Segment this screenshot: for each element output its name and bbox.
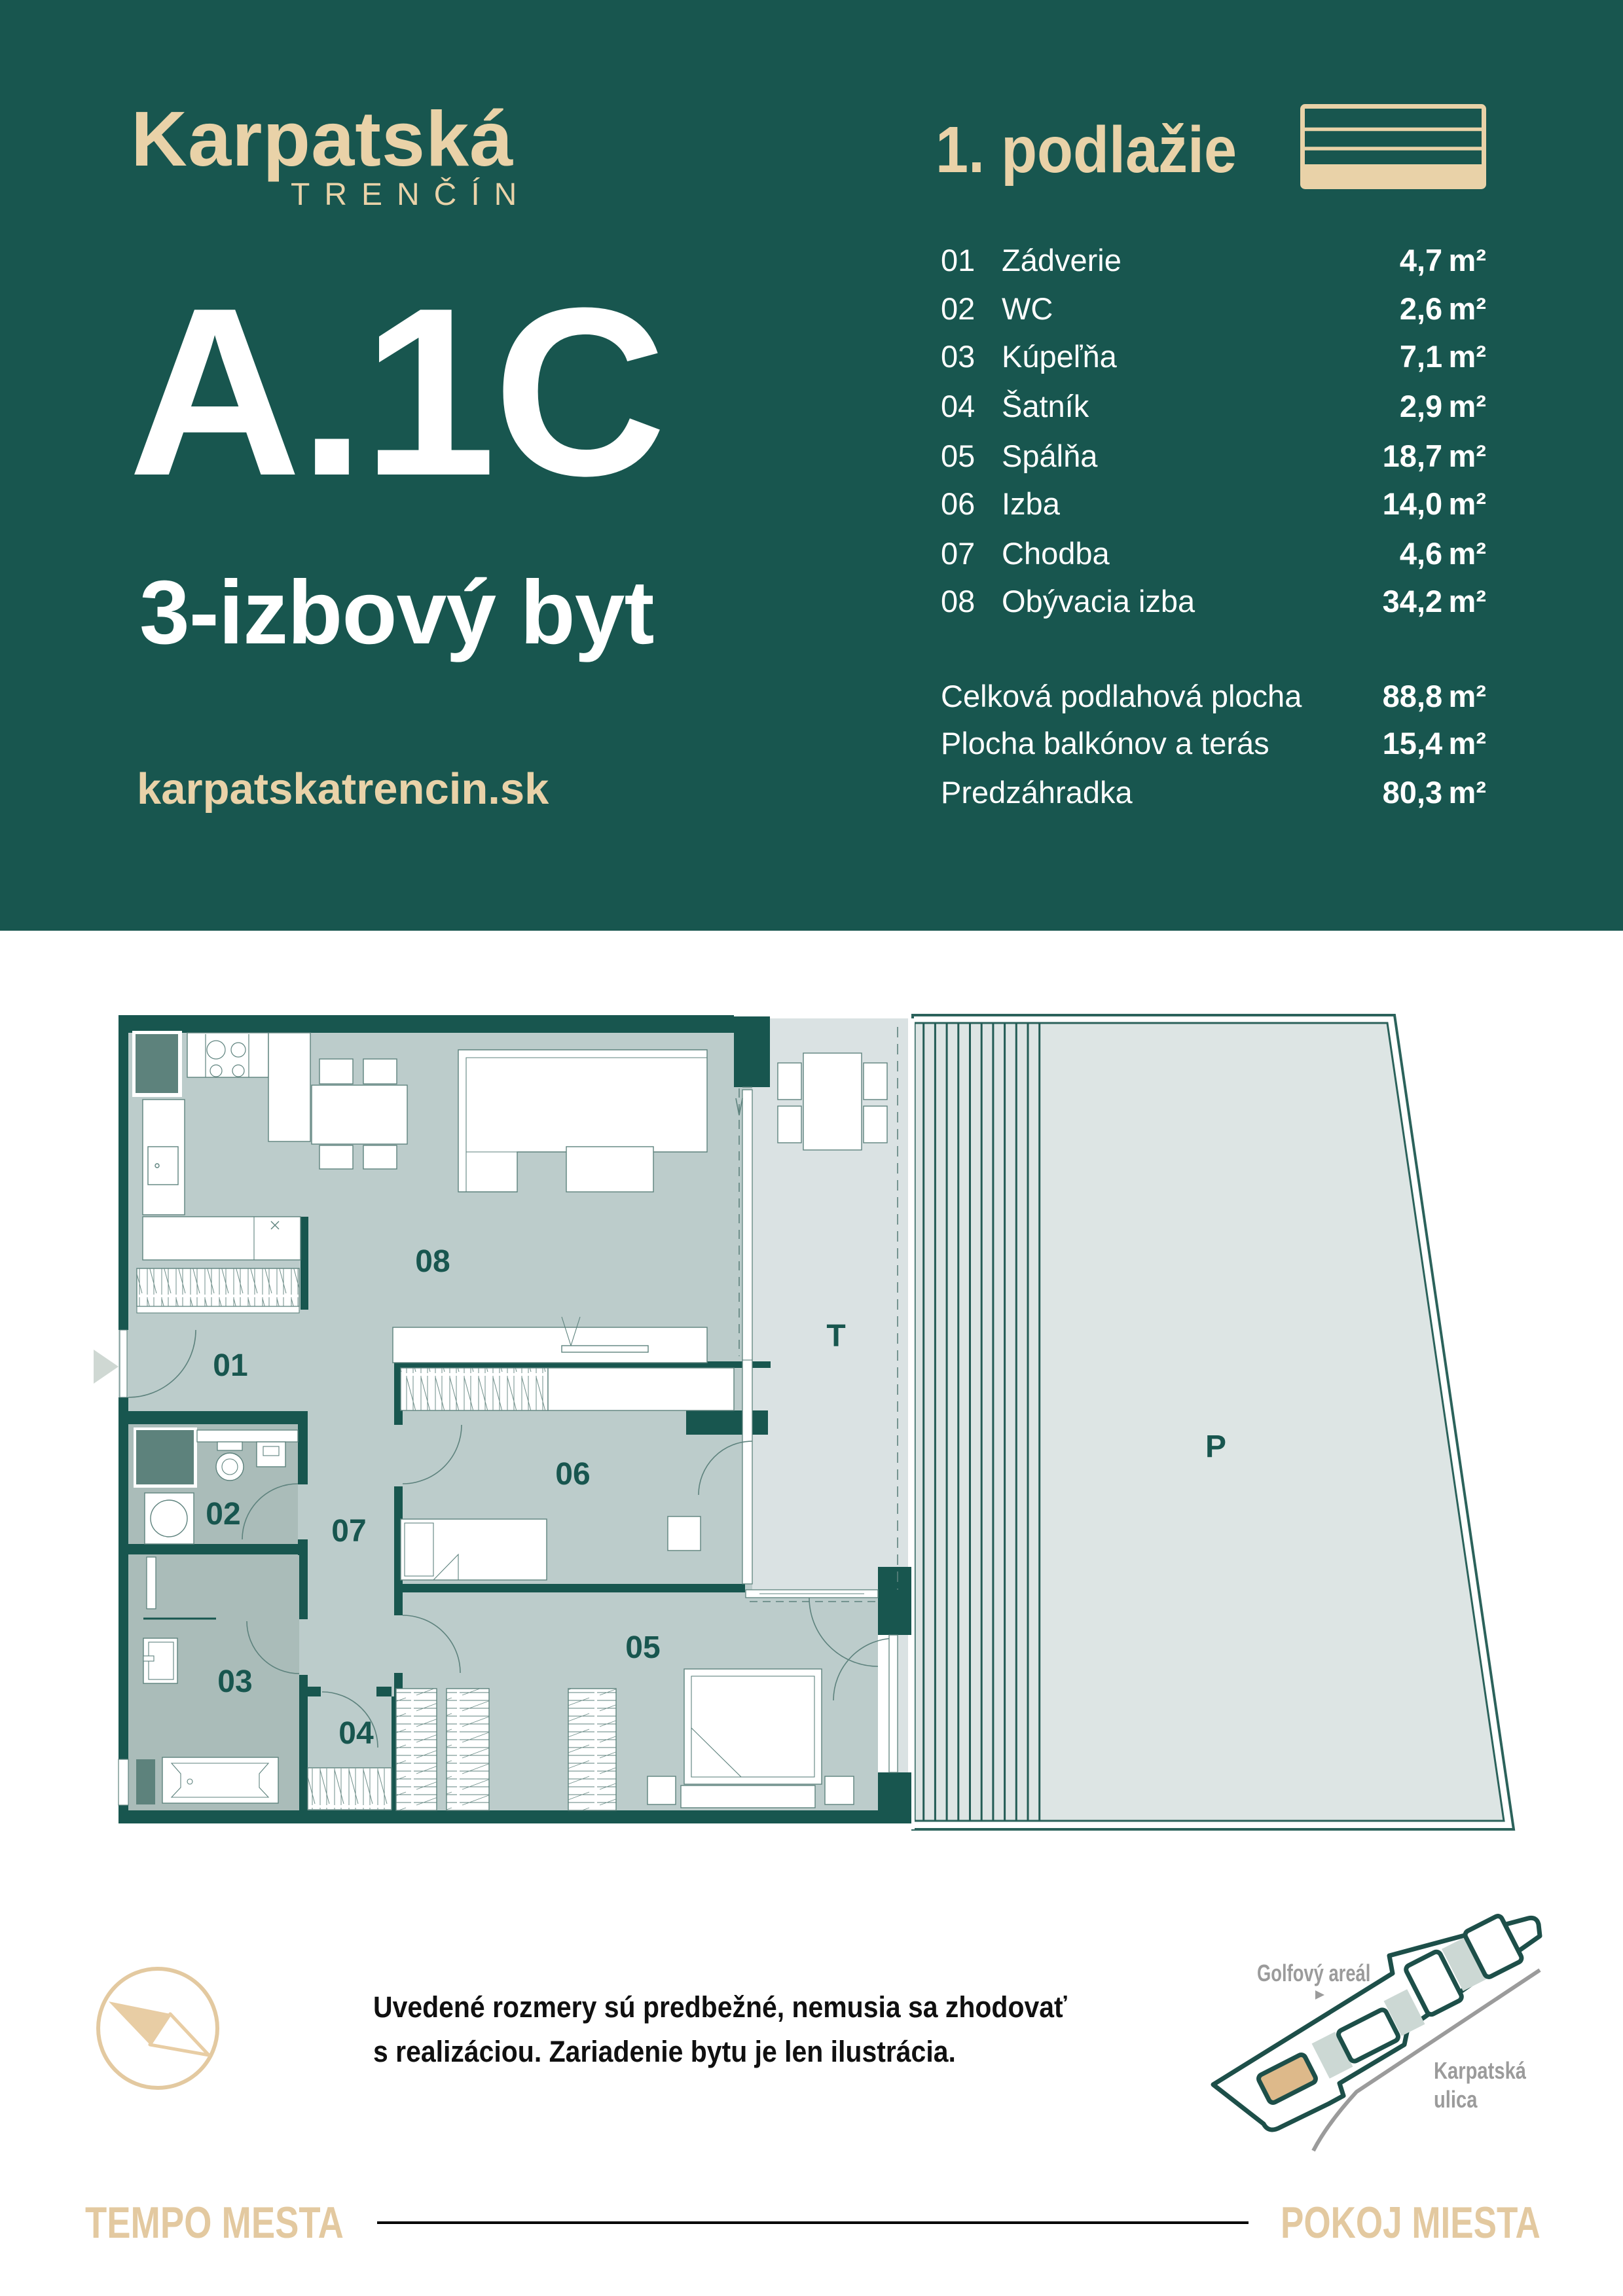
svg-text:04: 04 — [338, 1716, 374, 1751]
svg-text:01: 01 — [213, 1348, 247, 1383]
svg-text:07: 07 — [331, 1514, 366, 1549]
svg-text:P: P — [1205, 1429, 1226, 1464]
svg-text:03: 03 — [217, 1664, 252, 1699]
svg-text:05: 05 — [625, 1630, 660, 1665]
svg-text:02: 02 — [206, 1497, 240, 1532]
svg-text:06: 06 — [555, 1457, 590, 1492]
svg-text:T: T — [826, 1319, 845, 1354]
svg-text:08: 08 — [415, 1244, 450, 1279]
